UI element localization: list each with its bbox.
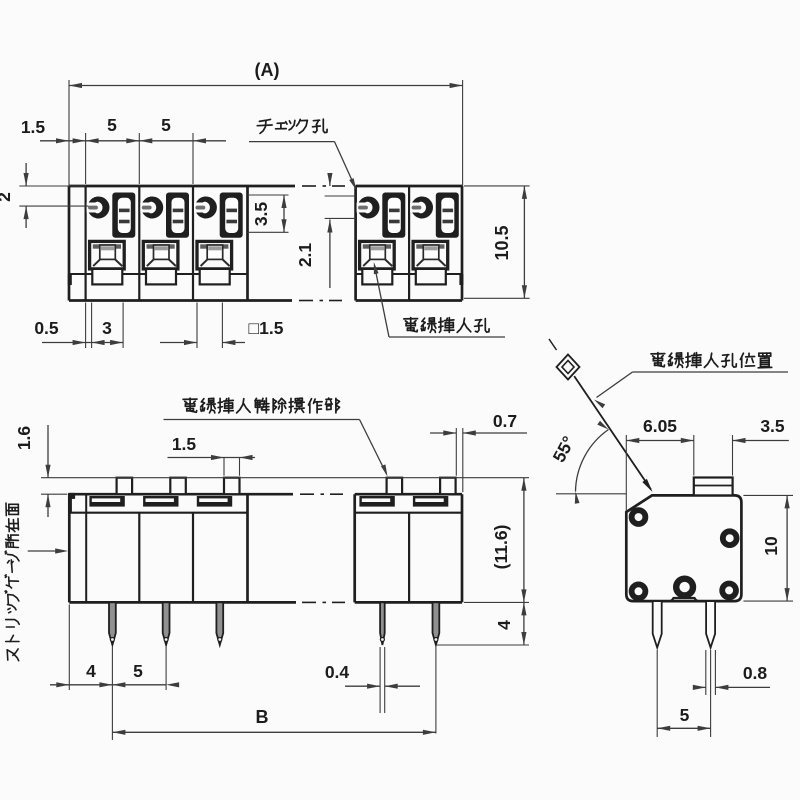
svg-text:5: 5: [133, 661, 143, 681]
svg-text:0.5: 0.5: [34, 318, 59, 338]
svg-text:2: 2: [0, 192, 14, 202]
svg-text:0.8: 0.8: [743, 663, 768, 683]
svg-text:1.5: 1.5: [21, 117, 46, 137]
svg-text:(A): (A): [255, 60, 280, 80]
svg-text:0.4: 0.4: [325, 662, 350, 682]
svg-text:□1.5: □1.5: [249, 318, 284, 338]
svg-text:5: 5: [161, 115, 171, 135]
svg-text:4: 4: [494, 620, 514, 630]
svg-text:0.7: 0.7: [493, 411, 517, 431]
svg-text:3: 3: [102, 318, 112, 338]
svg-text:4: 4: [86, 661, 96, 681]
svg-text:6.05: 6.05: [643, 416, 677, 436]
svg-text:(11.6): (11.6): [491, 525, 511, 570]
svg-text:2.1: 2.1: [295, 243, 315, 268]
svg-text:3.5: 3.5: [251, 202, 271, 227]
svg-text:10.5: 10.5: [492, 225, 512, 260]
svg-text:5: 5: [680, 705, 690, 725]
svg-text:5: 5: [107, 115, 117, 135]
svg-text:1.6: 1.6: [14, 426, 34, 451]
svg-text:10: 10: [761, 536, 781, 556]
svg-text:1.5: 1.5: [172, 434, 197, 454]
svg-text:55°: 55°: [549, 433, 579, 466]
svg-text:B: B: [256, 707, 269, 727]
svg-text:3.5: 3.5: [760, 416, 785, 436]
